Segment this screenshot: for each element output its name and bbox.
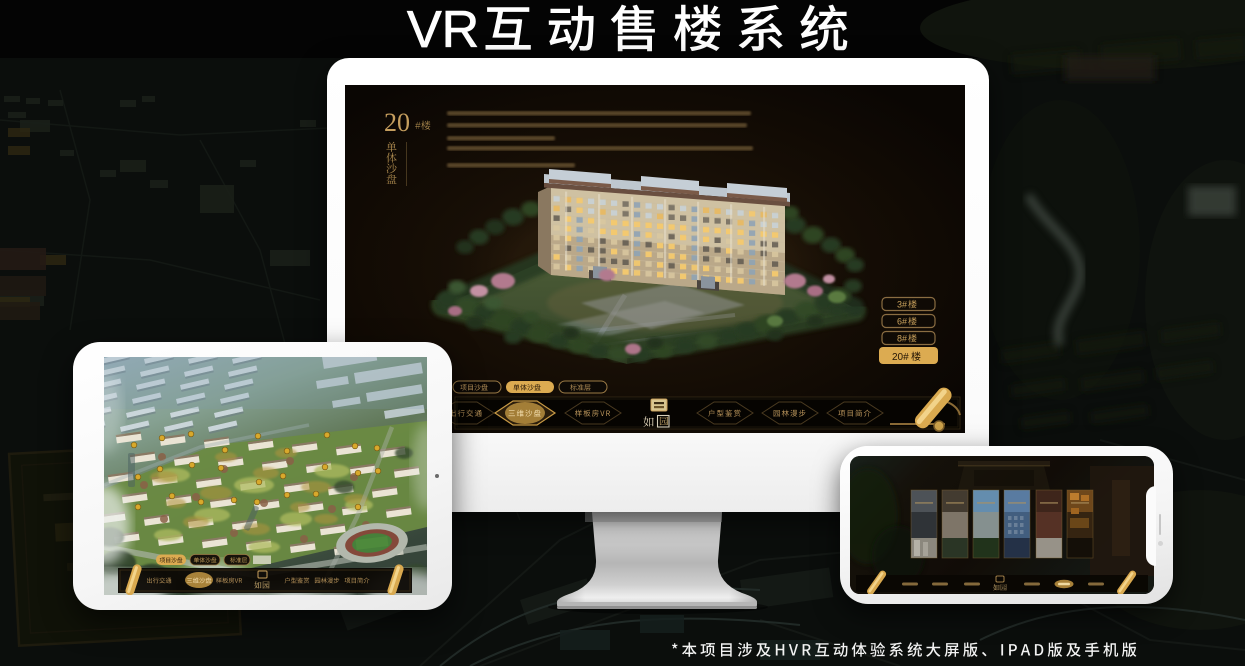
svg-text:20#: 20# xyxy=(892,352,909,363)
svg-text:3#: 3# xyxy=(897,300,907,310)
svg-text:6#: 6# xyxy=(897,317,907,327)
svg-text:8#: 8# xyxy=(897,334,907,344)
svg-text:VR: VR xyxy=(407,1,479,59)
svg-text:20: 20 xyxy=(384,108,410,137)
